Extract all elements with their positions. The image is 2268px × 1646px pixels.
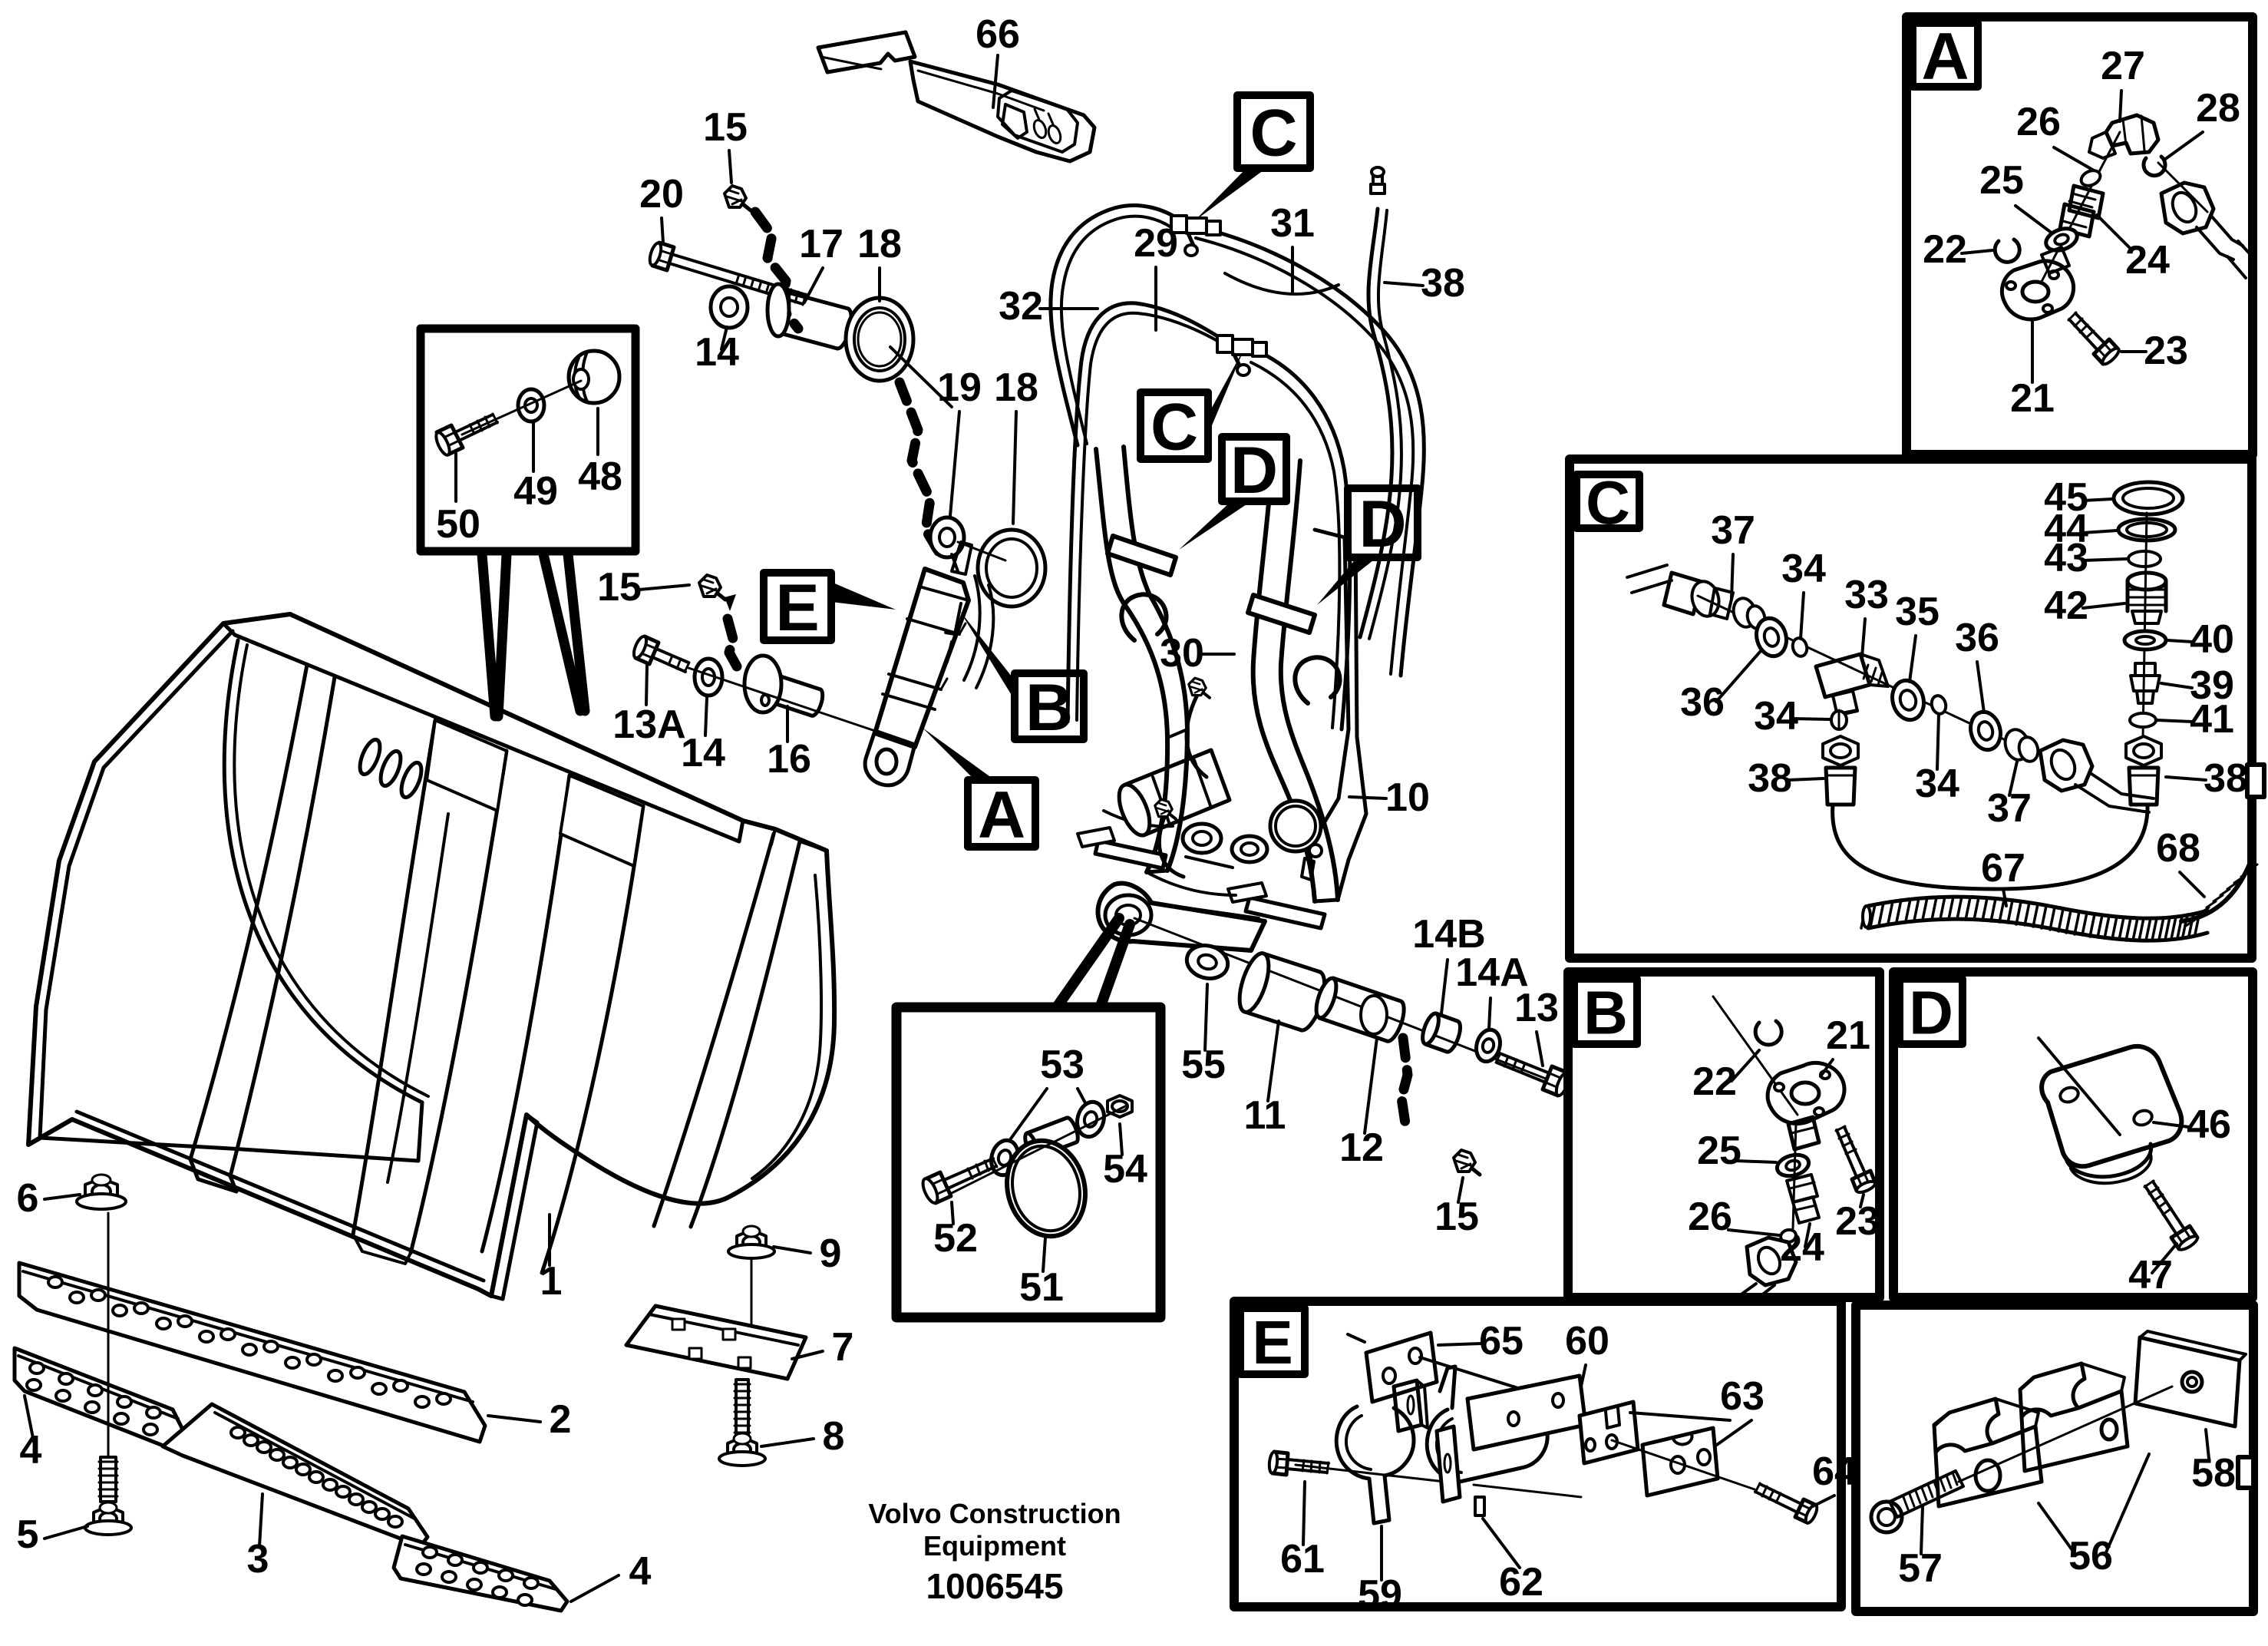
svg-text:D: D	[1230, 434, 1278, 507]
svg-text:49: 49	[513, 469, 558, 514]
svg-text:E: E	[1252, 1308, 1292, 1377]
svg-text:48: 48	[578, 454, 622, 499]
svg-text:53: 53	[1040, 1043, 1084, 1087]
svg-text:4: 4	[629, 1549, 652, 1594]
svg-text:65: 65	[1479, 1319, 1524, 1363]
svg-text:14: 14	[681, 731, 725, 775]
svg-text:30: 30	[1160, 631, 1204, 676]
svg-text:E: E	[775, 571, 819, 645]
svg-text:51: 51	[1019, 1265, 1064, 1310]
svg-text:50: 50	[436, 502, 480, 547]
svg-text:15: 15	[597, 565, 642, 610]
svg-text:A: A	[1921, 19, 1969, 93]
svg-text:13: 13	[1514, 986, 1559, 1030]
svg-text:C: C	[1586, 468, 1630, 537]
svg-text:33: 33	[1844, 573, 1889, 617]
svg-text:62: 62	[1499, 1560, 1543, 1605]
svg-text:18: 18	[994, 365, 1038, 410]
svg-text:23: 23	[2144, 329, 2188, 373]
svg-text:38: 38	[1748, 756, 1792, 801]
svg-text:13A: 13A	[612, 702, 685, 747]
svg-text:Volvo Construction: Volvo Construction	[868, 1498, 1121, 1529]
svg-text:58: 58	[2191, 1451, 2236, 1496]
svg-text:3: 3	[247, 1537, 269, 1582]
svg-text:31: 31	[1270, 201, 1315, 246]
svg-text:A: A	[978, 778, 1025, 851]
svg-text:60: 60	[1565, 1319, 1609, 1363]
svg-text:28: 28	[2196, 86, 2240, 131]
svg-text:10: 10	[1385, 775, 1430, 820]
svg-text:21: 21	[1826, 1013, 1870, 1058]
svg-text:34: 34	[1781, 547, 1826, 591]
svg-text:4: 4	[20, 1428, 42, 1472]
svg-text:8: 8	[823, 1414, 845, 1459]
svg-text:23: 23	[1835, 1199, 1880, 1244]
svg-text:25: 25	[1979, 158, 2024, 203]
svg-text:24: 24	[2125, 238, 2170, 283]
svg-text:54: 54	[1103, 1147, 1147, 1192]
svg-text:22: 22	[1923, 227, 1967, 272]
svg-text:38: 38	[2204, 756, 2248, 801]
svg-text:68: 68	[2156, 826, 2200, 871]
svg-text:35: 35	[1895, 590, 1940, 634]
svg-text:38: 38	[1421, 261, 1465, 306]
svg-text:2: 2	[550, 1397, 572, 1442]
svg-text:46: 46	[2187, 1102, 2231, 1147]
svg-text:22: 22	[1692, 1059, 1737, 1104]
svg-text:20: 20	[639, 172, 684, 216]
svg-text:42: 42	[2044, 583, 2088, 628]
svg-text:16: 16	[767, 737, 811, 782]
svg-text:Equipment: Equipment	[923, 1530, 1066, 1562]
svg-text:36: 36	[1955, 616, 1999, 660]
svg-text:29: 29	[1134, 221, 1178, 266]
svg-text:26: 26	[1688, 1195, 1732, 1239]
svg-text:36: 36	[1680, 680, 1725, 725]
svg-text:19: 19	[937, 365, 982, 410]
svg-text:15: 15	[1434, 1195, 1479, 1239]
svg-text:6: 6	[17, 1176, 39, 1221]
svg-text:12: 12	[1339, 1125, 1384, 1170]
svg-text:14: 14	[695, 330, 739, 375]
svg-text:D: D	[1909, 978, 1953, 1046]
svg-text:1006545: 1006545	[926, 1566, 1063, 1606]
svg-text:7: 7	[832, 1325, 854, 1370]
svg-text:37: 37	[1711, 508, 1755, 553]
svg-text:47: 47	[2128, 1253, 2173, 1297]
svg-text:C: C	[1250, 96, 1297, 170]
svg-text:25: 25	[1697, 1129, 1741, 1173]
svg-text:43: 43	[2044, 536, 2088, 580]
svg-text:11: 11	[1244, 1093, 1286, 1138]
svg-text:15: 15	[703, 105, 748, 150]
svg-text:64: 64	[1812, 1449, 1857, 1494]
svg-text:9: 9	[820, 1231, 842, 1276]
svg-text:17: 17	[799, 222, 843, 266]
svg-text:27: 27	[2101, 44, 2145, 88]
svg-text:55: 55	[1181, 1043, 1226, 1087]
svg-text:56: 56	[2068, 1534, 2113, 1578]
svg-text:63: 63	[1720, 1374, 1765, 1419]
svg-text:1: 1	[540, 1259, 563, 1304]
svg-text:B: B	[1025, 671, 1073, 745]
svg-text:5: 5	[17, 1512, 39, 1557]
svg-text:26: 26	[2016, 100, 2061, 144]
svg-text:C: C	[1151, 390, 1198, 464]
svg-text:66: 66	[976, 12, 1020, 57]
svg-text:18: 18	[857, 222, 902, 266]
svg-text:34: 34	[1754, 694, 1798, 739]
svg-text:40: 40	[2190, 617, 2234, 662]
svg-text:32: 32	[999, 284, 1043, 329]
svg-text:67: 67	[1981, 846, 2025, 891]
svg-text:41: 41	[2190, 697, 2234, 742]
svg-text:B: B	[1583, 978, 1628, 1046]
svg-text:52: 52	[933, 1216, 978, 1261]
